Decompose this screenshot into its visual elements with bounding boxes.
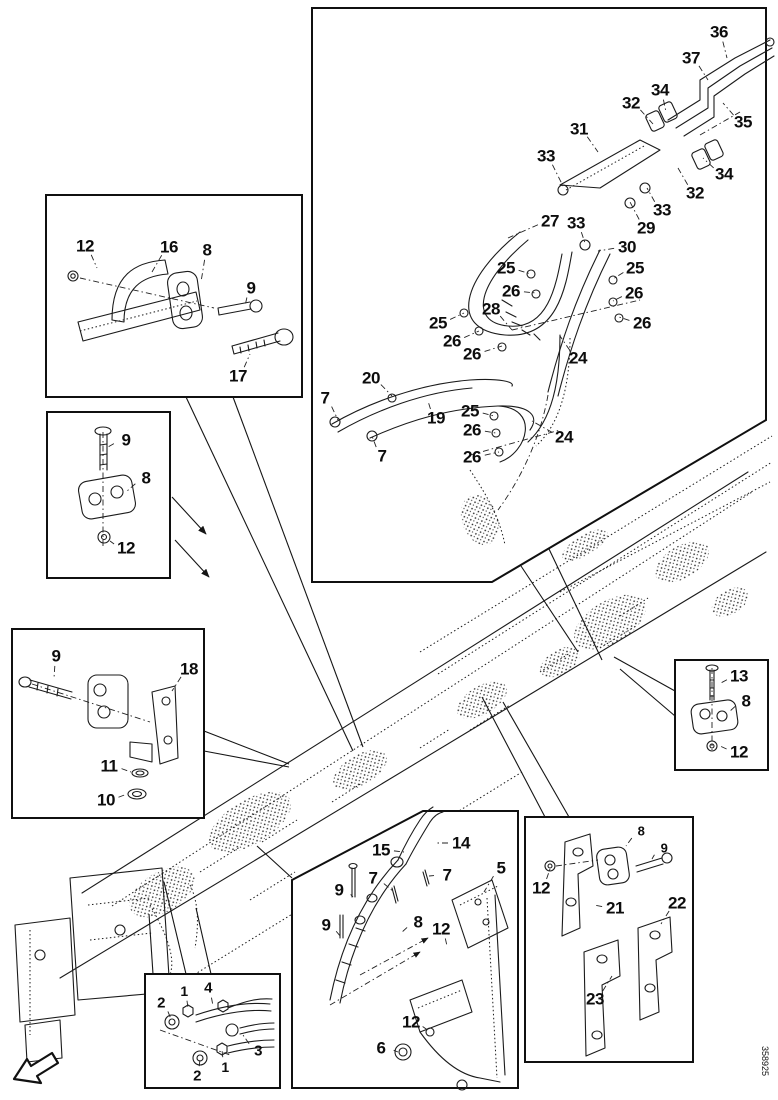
callout-label-2: 2 (193, 1068, 201, 1085)
callout-label-35: 35 (734, 113, 752, 132)
callout-label-17: 17 (229, 367, 247, 386)
direction-arrow-icon (14, 1053, 58, 1083)
callout-label-9: 9 (322, 916, 331, 935)
box-hose-fittings-detail (145, 974, 280, 1088)
callout-label-16: 16 (160, 238, 178, 257)
callout-label-22: 22 (668, 894, 686, 913)
callout-label-29: 29 (637, 219, 655, 238)
parts-diagram-page: 358925 363734323531333432332927333025252… (0, 0, 778, 1100)
callout-label-3: 3 (254, 1043, 262, 1060)
callout-label-4: 4 (204, 980, 213, 997)
callout-label-9: 9 (52, 647, 61, 666)
callout-label-9: 9 (335, 881, 344, 900)
callout-label-6: 6 (377, 1039, 386, 1058)
callout-label-24: 24 (569, 349, 588, 368)
callout-label-25: 25 (461, 402, 479, 421)
callout-label-37: 37 (682, 49, 700, 68)
callout-label-13: 13 (730, 667, 748, 686)
callout-label-25: 25 (626, 259, 644, 278)
callout-label-12: 12 (117, 539, 135, 558)
callout-label-32: 32 (686, 184, 704, 203)
callout-label-7: 7 (443, 866, 452, 885)
figure-number: 358925 (760, 1046, 770, 1076)
callout-label-8: 8 (742, 692, 751, 711)
box-hose-guide-detail (292, 811, 518, 1088)
callout-label-28: 28 (482, 300, 500, 319)
callout-label-30: 30 (618, 238, 636, 257)
callout-label-25: 25 (429, 314, 447, 333)
callout-label-26: 26 (463, 345, 481, 364)
box-u-bolt-clamp-detail (46, 195, 302, 397)
callout-label-26: 26 (443, 332, 461, 351)
callout-label-9: 9 (122, 431, 131, 450)
callout-label-23: 23 (586, 990, 604, 1009)
callout-label-26: 26 (625, 284, 643, 303)
callout-label-15: 15 (372, 841, 390, 860)
callout-label-12: 12 (402, 1013, 420, 1032)
callout-label-26: 26 (463, 448, 481, 467)
parts-figure: 358925 363734323531333432332927333025252… (0, 0, 778, 1100)
box-clamp-detail-right (675, 660, 768, 770)
callout-label-33: 33 (567, 214, 585, 233)
callout-label-26: 26 (633, 314, 651, 333)
callout-label-8: 8 (203, 241, 212, 260)
callout-label-19: 19 (427, 409, 445, 428)
callout-label-32: 32 (622, 94, 640, 113)
callout-label-18: 18 (180, 660, 198, 679)
callout-label-26: 26 (502, 282, 520, 301)
callout-label-33: 33 (653, 201, 671, 220)
callout-label-8: 8 (142, 469, 151, 488)
callout-label-7: 7 (378, 447, 387, 466)
callout-label-27: 27 (541, 212, 559, 231)
callout-label-25: 25 (497, 259, 515, 278)
callout-label-5: 5 (497, 859, 506, 878)
callout-label-7: 7 (369, 869, 378, 888)
box-clamp-detail-upper (47, 412, 170, 578)
box-hose-routing-detail (312, 8, 766, 582)
callout-label-26: 26 (463, 421, 481, 440)
callout-label-2: 2 (157, 995, 165, 1012)
box-mounting-brackets-detail (525, 817, 693, 1062)
callout-label-21: 21 (606, 899, 624, 918)
callout-label-12: 12 (532, 879, 550, 898)
callout-label-12: 12 (76, 237, 94, 256)
callout-label-11: 11 (101, 757, 118, 776)
callout-label-8: 8 (414, 913, 423, 932)
callout-label-36: 36 (710, 23, 728, 42)
callout-label-9: 9 (661, 841, 668, 856)
callout-label-7: 7 (321, 389, 330, 408)
callout-label-14: 14 (452, 834, 471, 853)
callout-label-33: 33 (537, 147, 555, 166)
callout-label-34: 34 (651, 81, 670, 100)
callout-label-8: 8 (638, 824, 645, 839)
callout-label-12: 12 (432, 920, 450, 939)
callout-label-20: 20 (362, 369, 380, 388)
callout-label-10: 10 (97, 791, 115, 810)
callout-label-9: 9 (247, 279, 256, 298)
callout-label-31: 31 (570, 120, 588, 139)
callout-label-1: 1 (180, 983, 188, 999)
callout-label-1: 1 (221, 1059, 229, 1075)
callout-label-24: 24 (555, 428, 574, 447)
callout-label-12: 12 (730, 743, 748, 762)
callout-label-34: 34 (715, 165, 734, 184)
